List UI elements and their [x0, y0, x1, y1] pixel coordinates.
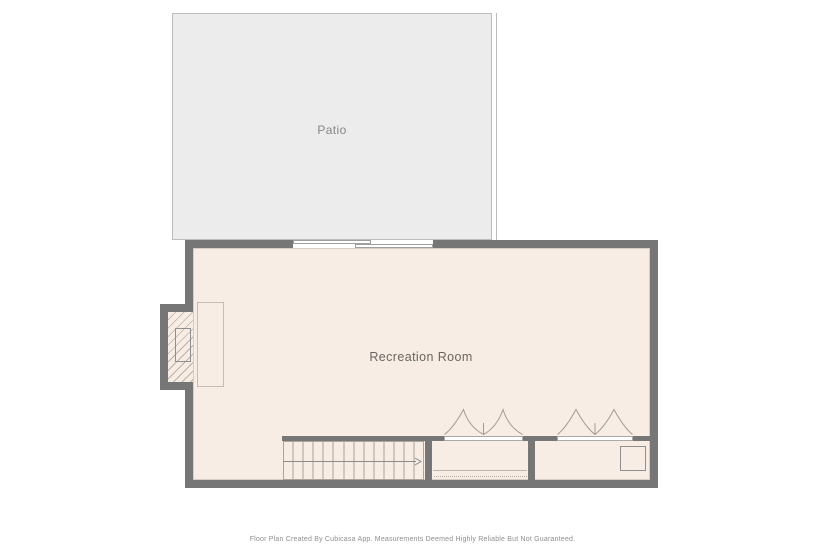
floorplan-canvas: Patio Recreation Room Floor Plan Created — [0, 0, 825, 560]
bifold-door-icon — [557, 408, 633, 436]
sliding-door-panel — [355, 244, 433, 248]
closet-door-sill — [557, 436, 633, 441]
closet-door-sill — [444, 436, 523, 441]
closet-shelf-line — [433, 470, 527, 471]
patio-label: Patio — [317, 123, 346, 137]
interior-wall — [425, 436, 432, 480]
interior-wall — [528, 436, 535, 480]
interior-wall — [633, 436, 650, 441]
fireplace-firebox — [175, 328, 191, 362]
appliance-square — [620, 446, 646, 471]
footer-disclaimer: Floor Plan Created By Cubicasa App. Meas… — [0, 536, 825, 543]
recreation-room-label: Recreation Room — [369, 350, 472, 364]
bifold-door-icon — [444, 408, 523, 436]
fireplace-hearth — [197, 302, 224, 387]
closet-rod-line — [434, 476, 527, 477]
patio-edge-line — [496, 13, 497, 240]
stairs — [283, 441, 424, 480]
